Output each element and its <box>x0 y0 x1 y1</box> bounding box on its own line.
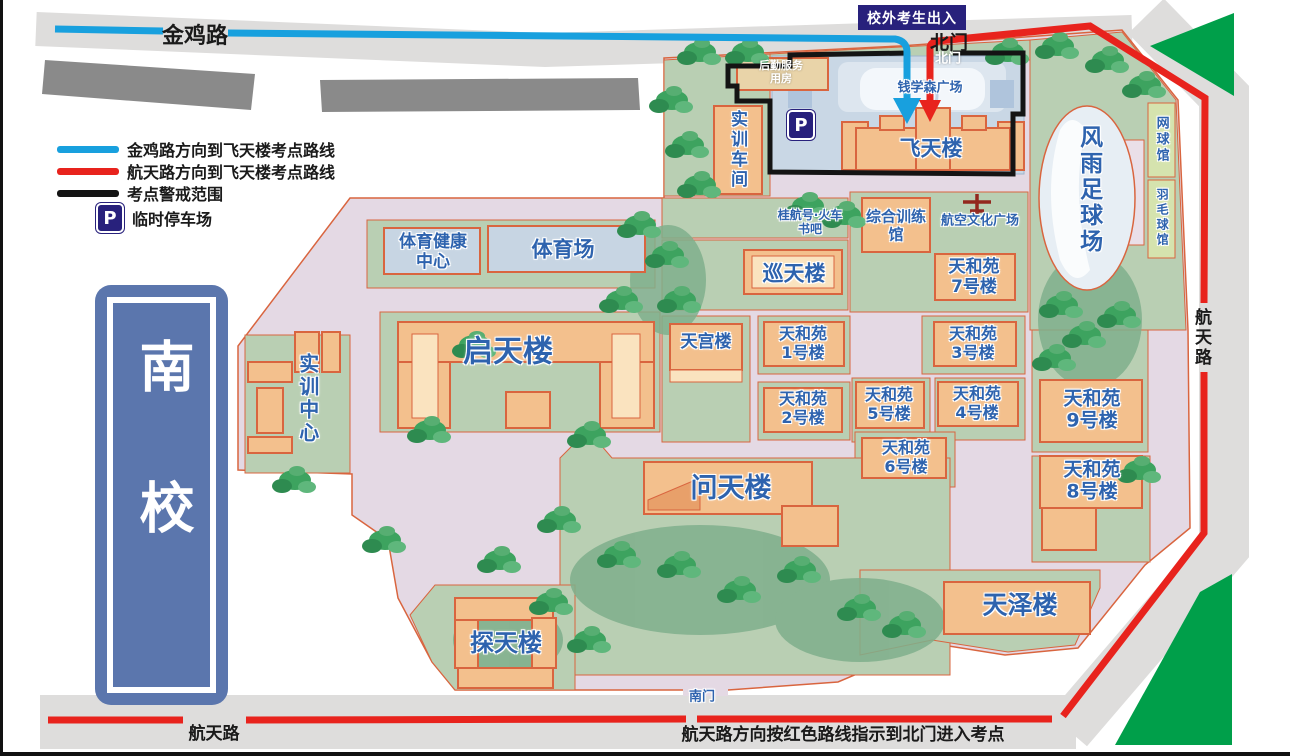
campus-sign-frame: 南校 <box>107 297 216 693</box>
legend-label: 金鸡路方向到飞天楼考点路线 <box>127 137 335 161</box>
south-gate-label: 南门 <box>689 689 715 704</box>
route-instruction: 航天路方向按红色路线指示到北门进入考点 <box>682 725 1005 745</box>
north-gate-inner-label: 北门 <box>935 51 961 66</box>
label-feitian: 飞天楼 <box>900 137 963 162</box>
label-zonghe: 综合训练 馆 <box>866 208 926 243</box>
label-tianhe5: 天和苑 5号楼 <box>865 386 913 424</box>
label-fengyu: 风雨足球场 <box>1074 125 1101 255</box>
legend-item-boundary: 考点警戒范围 <box>57 181 223 205</box>
label-shixun-center: 实训中心 <box>295 353 319 445</box>
label-yumaoqiu: 羽毛球馆 <box>1155 188 1169 248</box>
boundary-swatch <box>57 190 119 197</box>
campus-sign-text: 南校 <box>134 338 189 668</box>
label-tianhe1: 天和苑 1号楼 <box>779 325 827 363</box>
label-tiyu-jiankang: 体育健康 中心 <box>399 232 467 272</box>
legend-item-parking: P 临时停车场 <box>96 203 212 233</box>
label-guihang: 桂航号·火车 书吧 <box>778 208 843 236</box>
gray-building-1 <box>42 60 255 110</box>
legend-item-blue-route: 金鸡路方向到飞天楼考点路线 <box>57 137 335 161</box>
parking-icon: P <box>96 203 124 233</box>
legend-item-red-route: 航天路方向到飞天楼考点路线 <box>57 159 335 183</box>
label-tiangong: 天宫楼 <box>681 332 732 352</box>
road-label-hangtian-right: 航天路 <box>1191 308 1211 368</box>
label-tianhe4: 天和苑 4号楼 <box>953 385 1001 423</box>
label-tianze: 天泽楼 <box>982 590 1057 620</box>
label-tianhe6: 天和苑 6号楼 <box>882 439 930 477</box>
parking-icon-map: P <box>787 110 815 140</box>
label-tianhe2: 天和苑 2号楼 <box>779 390 827 428</box>
label-shixun-chejian: 实训车间 <box>727 110 747 190</box>
poster-border-bottom <box>0 752 1290 756</box>
label-houqin: 后勤服务 用房 <box>759 60 803 86</box>
legend-label: 考点警戒范围 <box>127 181 223 205</box>
entrance-banner: 校外考生出入 <box>858 5 966 30</box>
legend-label: 航天路方向到飞天楼考点路线 <box>127 159 335 183</box>
campus-sign: 南校 <box>95 285 228 705</box>
label-tantian: 探天楼 <box>470 629 542 657</box>
campus-exam-map: 金鸡路 航天路 航天路 航天路方向按红色路线指示到北门进入考点 金鸡路方向到飞天… <box>0 0 1290 756</box>
label-wentian: 问天楼 <box>691 473 772 505</box>
road-label-hangtian-bottom: 航天路 <box>189 724 240 744</box>
label-tianhe7: 天和苑 7号楼 <box>949 257 1000 297</box>
blue-route-swatch <box>57 146 119 153</box>
label-qianxuesen-square: 钱学森广场 <box>897 80 962 95</box>
poster-border-left <box>0 0 3 756</box>
label-tiyuchang: 体育场 <box>532 238 595 263</box>
gray-building-2 <box>320 78 640 112</box>
label-tianhe9: 天和苑 9号楼 <box>1063 388 1120 433</box>
label-xuntian: 巡天楼 <box>763 262 826 287</box>
label-hangkong-square: 航空文化广场 <box>941 213 1019 228</box>
red-route-swatch <box>57 168 119 175</box>
label-tianhe8: 天和苑 8号楼 <box>1063 459 1120 504</box>
legend-label: 临时停车场 <box>132 206 212 230</box>
road-label-jinji: 金鸡路 <box>162 24 228 50</box>
label-qitian: 启天楼 <box>463 334 553 369</box>
label-wangqiu: 网球馆 <box>1153 116 1168 164</box>
label-tianhe3: 天和苑 3号楼 <box>949 325 997 363</box>
